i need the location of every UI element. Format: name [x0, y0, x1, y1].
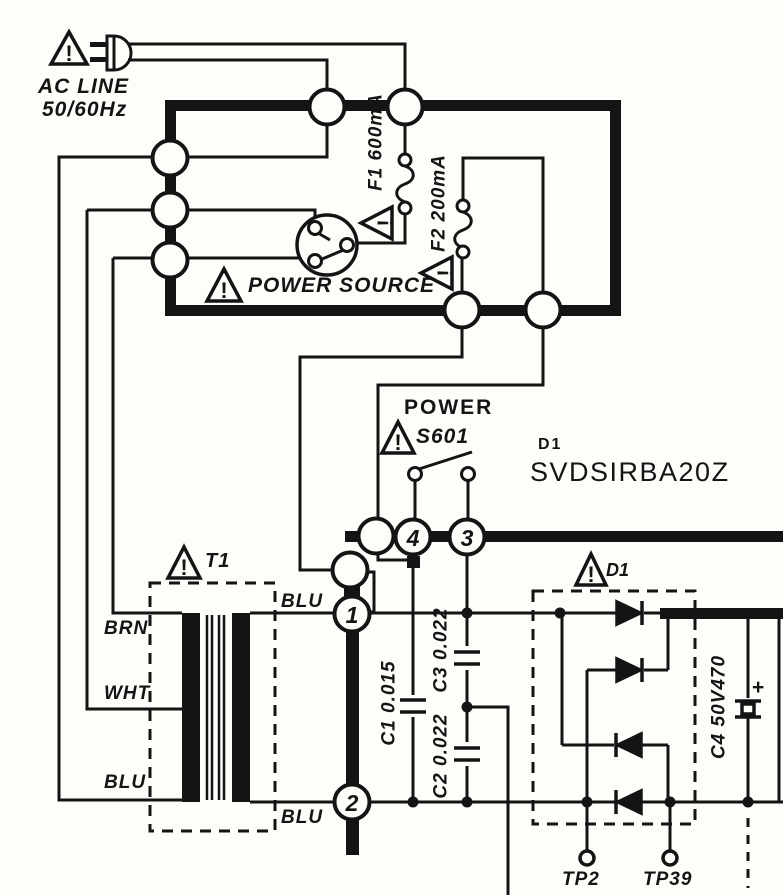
tp2-terminal	[580, 851, 594, 865]
diode-2	[617, 659, 640, 681]
bridge-boundary	[533, 591, 695, 824]
tp2-label: TP2	[562, 870, 600, 889]
fuse1-label: F1 600mA	[367, 93, 386, 191]
fuse1-element	[397, 166, 414, 202]
secondary-winding-bar	[232, 613, 250, 802]
wire-fuse2-loop	[462, 158, 543, 292]
warning-mark: !	[394, 430, 401, 455]
wire-ac-bottom	[128, 60, 327, 90]
c3-label: C3 0.022	[432, 607, 451, 692]
fuse2-label: F2 200mA	[430, 154, 449, 252]
warning-mark: !	[220, 278, 227, 303]
warning-mark: !	[587, 562, 594, 587]
cap-c3	[454, 652, 480, 664]
cap-c1	[400, 700, 426, 712]
wire-testpoints	[587, 802, 670, 851]
power-source-switch	[297, 215, 357, 275]
fuse2-element	[455, 212, 472, 248]
bus-dc-output	[660, 608, 783, 619]
c1-label: C1 0.015	[380, 660, 399, 745]
switch-pin-top	[309, 222, 322, 235]
s601-pin-left	[409, 468, 422, 481]
power-source-label: POWER SOURCE	[248, 275, 435, 296]
ac-plug-icon	[90, 36, 131, 70]
cap-c2	[454, 748, 480, 760]
c2-label: C2 0.022	[432, 713, 451, 798]
switch-pin-left	[309, 255, 322, 268]
node-left-3	[153, 243, 188, 278]
fuse1-terminal-top	[399, 154, 411, 166]
junction-dots	[408, 608, 754, 808]
primary-winding-bar	[182, 613, 200, 802]
tp39-label: TP39	[643, 870, 692, 889]
fuse2-terminal-top	[457, 200, 469, 212]
fuse2-terminal-bottom	[457, 246, 469, 258]
t1-label: T1	[205, 551, 230, 571]
transformer-t1	[150, 583, 275, 831]
wht-label: WHT	[104, 684, 150, 703]
node-connector-a	[359, 519, 394, 554]
schematic-page: 1 2 4 3 ! ! ! ! ! ! ! AC LINE 50/	[0, 0, 783, 895]
wire-diode3	[562, 613, 668, 802]
node-left-1	[153, 141, 188, 176]
pin-number-1: 1	[346, 602, 359, 628]
rectifier-part-label: SVDSIRBA20Z	[530, 459, 730, 486]
pin-number-2: 2	[345, 790, 359, 816]
fuse1-terminal-bottom	[399, 202, 411, 214]
blu-left-label: BLU	[104, 773, 146, 792]
blu-bottom-label: BLU	[281, 808, 323, 827]
switch-pin-right	[341, 239, 354, 252]
wire-ac-top	[128, 44, 405, 90]
bridge-diodes	[616, 601, 642, 814]
node-ac-2	[388, 90, 423, 125]
bus-pin1-pin2	[346, 627, 359, 789]
node-bottom-1	[445, 293, 480, 328]
c4-plus-sign: +	[752, 677, 764, 698]
switch-lever	[419, 452, 472, 469]
bus-right-rail	[610, 100, 621, 316]
ac-freq-label: 50/60Hz	[42, 99, 127, 120]
diode-3	[618, 734, 641, 756]
ac-line-label: AC LINE	[38, 76, 129, 97]
power-label: POWER	[404, 397, 493, 418]
wire-switch-pins	[415, 480, 468, 520]
cap-c4-polar-box	[742, 704, 754, 714]
wire-diode2	[587, 613, 668, 802]
pin-number-4: 4	[406, 525, 420, 551]
brn-label: BRN	[104, 619, 148, 638]
node-left-2	[153, 193, 188, 228]
warning-mark: !	[180, 555, 187, 580]
blu-top-label: BLU	[281, 592, 323, 611]
rectifier-ref-label: D1	[538, 437, 562, 453]
node-ac-1	[310, 90, 345, 125]
warning-mark: !	[373, 219, 398, 226]
node-bottom-2	[526, 293, 561, 328]
warning-mark: !	[65, 41, 72, 66]
circuit-artwork: 1 2 4 3 ! ! ! ! ! ! !	[0, 0, 783, 895]
c4-label: C4 50V470	[710, 655, 729, 759]
s601-pin-right	[462, 468, 475, 481]
node-connector-b	[333, 553, 368, 588]
bridge-ref-label: D1	[606, 561, 629, 579]
warning-mark: !	[433, 269, 458, 276]
pin-number-3: 3	[461, 525, 474, 551]
tp39-terminal	[663, 851, 677, 865]
diode-4	[618, 791, 641, 813]
s601-label: S601	[416, 426, 469, 447]
junction-square-c1	[407, 556, 420, 568]
bus-pin2-stub	[346, 817, 359, 855]
core-laminations	[207, 615, 224, 800]
diode-1	[617, 602, 640, 624]
